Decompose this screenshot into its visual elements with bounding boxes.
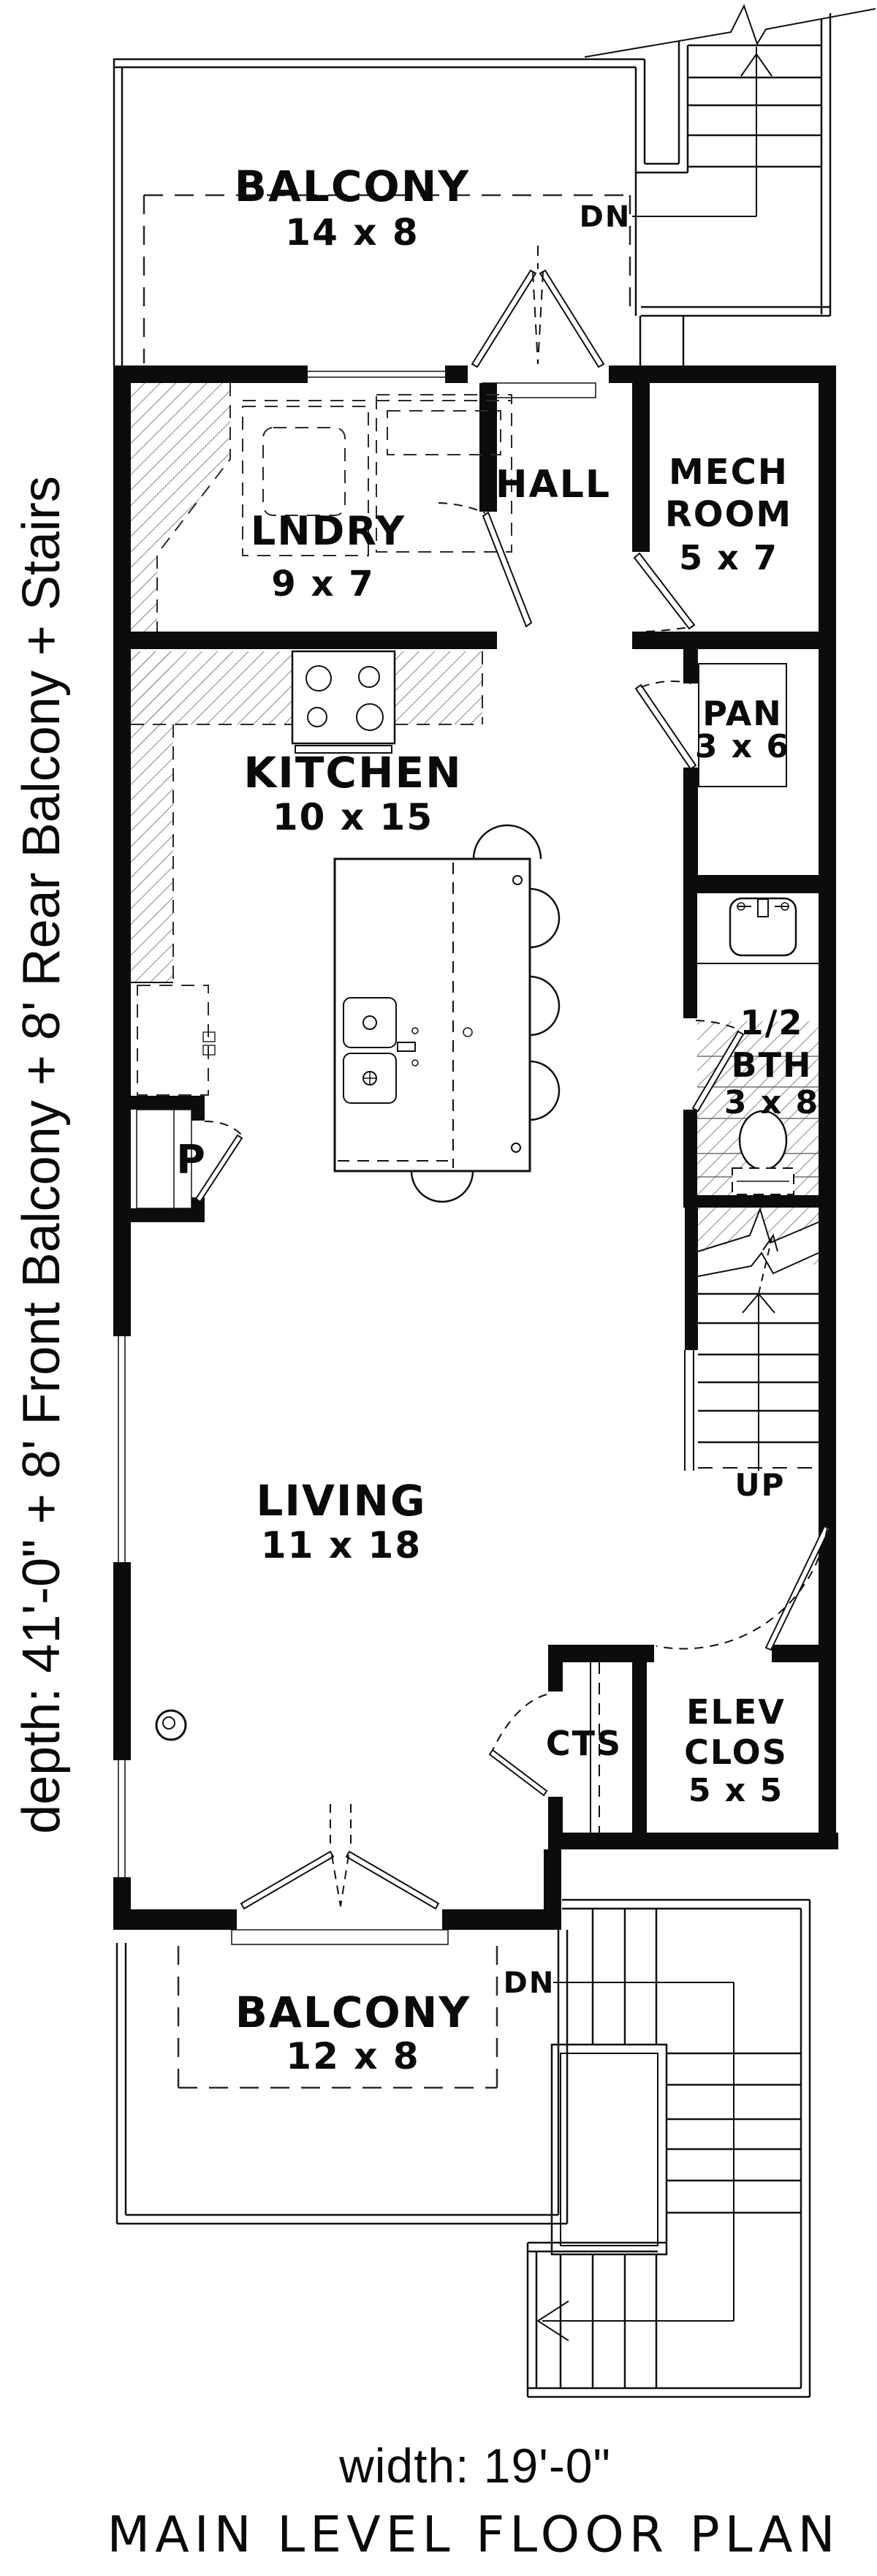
room-label-living: LIVING [256, 1480, 426, 1522]
room-size-kitchen: 10 x 15 [273, 799, 433, 836]
room-label-half-bath-2: BTH [732, 1048, 813, 1082]
room-label-elev-1: ELEV [686, 1695, 786, 1729]
room-label-half-bath-1: 1/2 [740, 1006, 804, 1039]
room-label-rear-balcony: BALCONY [235, 165, 470, 208]
room-size-pantry: 3 x 6 [695, 731, 790, 763]
up-stairs [685, 1208, 819, 1471]
room-size-mech: 5 x 7 [679, 541, 778, 575]
room-label-hall: HALL [496, 466, 611, 504]
room-size-rear-balcony: 14 x 8 [285, 214, 419, 251]
room-label-elev-2: CLOS [684, 1735, 788, 1769]
elevator-door-icon [656, 1526, 829, 1650]
room-label-kitchen: KITCHEN [243, 751, 462, 794]
outlet-icon [156, 1711, 186, 1740]
room-label-p-closet: P [176, 1140, 207, 1180]
page-title: MAIN LEVEL FLOOR PLAN [107, 2507, 840, 2564]
vanity-sink-icon [697, 898, 819, 963]
room-size-elev: 5 x 5 [688, 1775, 783, 1807]
pantry-door-icon [636, 681, 696, 769]
floor-plan-sheet: BALCONY 14 x 8 DN LNDRY 9 x 7 HALL MECH … [0, 0, 877, 2576]
room-size-half-bath: 3 x 8 [724, 1087, 819, 1119]
stair-label-up: UP [735, 1470, 786, 1501]
floor-plan-linework [0, 0, 877, 2576]
entry-double-door-icon [472, 246, 604, 398]
room-label-mech-2: ROOM [665, 497, 792, 532]
room-label-laundry: LNDRY [251, 512, 406, 551]
room-label-cts: CTS [546, 1727, 622, 1760]
rear-balcony-railing [113, 13, 830, 365]
laundry-door-icon [438, 503, 531, 626]
french-door-icon [232, 1804, 448, 1944]
front-stairs [528, 1900, 810, 2397]
room-label-mech-1: MECH [669, 455, 789, 490]
room-size-living: 11 x 18 [261, 1527, 422, 1564]
room-size-front-balcony: 12 x 8 [286, 2038, 419, 2075]
rear-stairs [585, 6, 876, 216]
width-dimension-label: width: 19'-0" [339, 2438, 611, 2493]
refrigerator-icon [137, 985, 215, 1095]
depth-dimension-label: depth: 41'-0" + 8' Front Balcony + 8' Re… [12, 476, 72, 1834]
room-label-pantry: PAN [702, 697, 783, 730]
room-size-laundry: 9 x 7 [271, 567, 374, 602]
stair-label-dn-rear: DN [580, 202, 631, 232]
cts-door-icon [490, 1694, 547, 1795]
stove-icon [292, 651, 395, 753]
laundry-counter-hatch [131, 383, 230, 632]
room-label-front-balcony: BALCONY [235, 1991, 471, 2034]
stair-label-dn-front: DN [504, 1969, 555, 1998]
